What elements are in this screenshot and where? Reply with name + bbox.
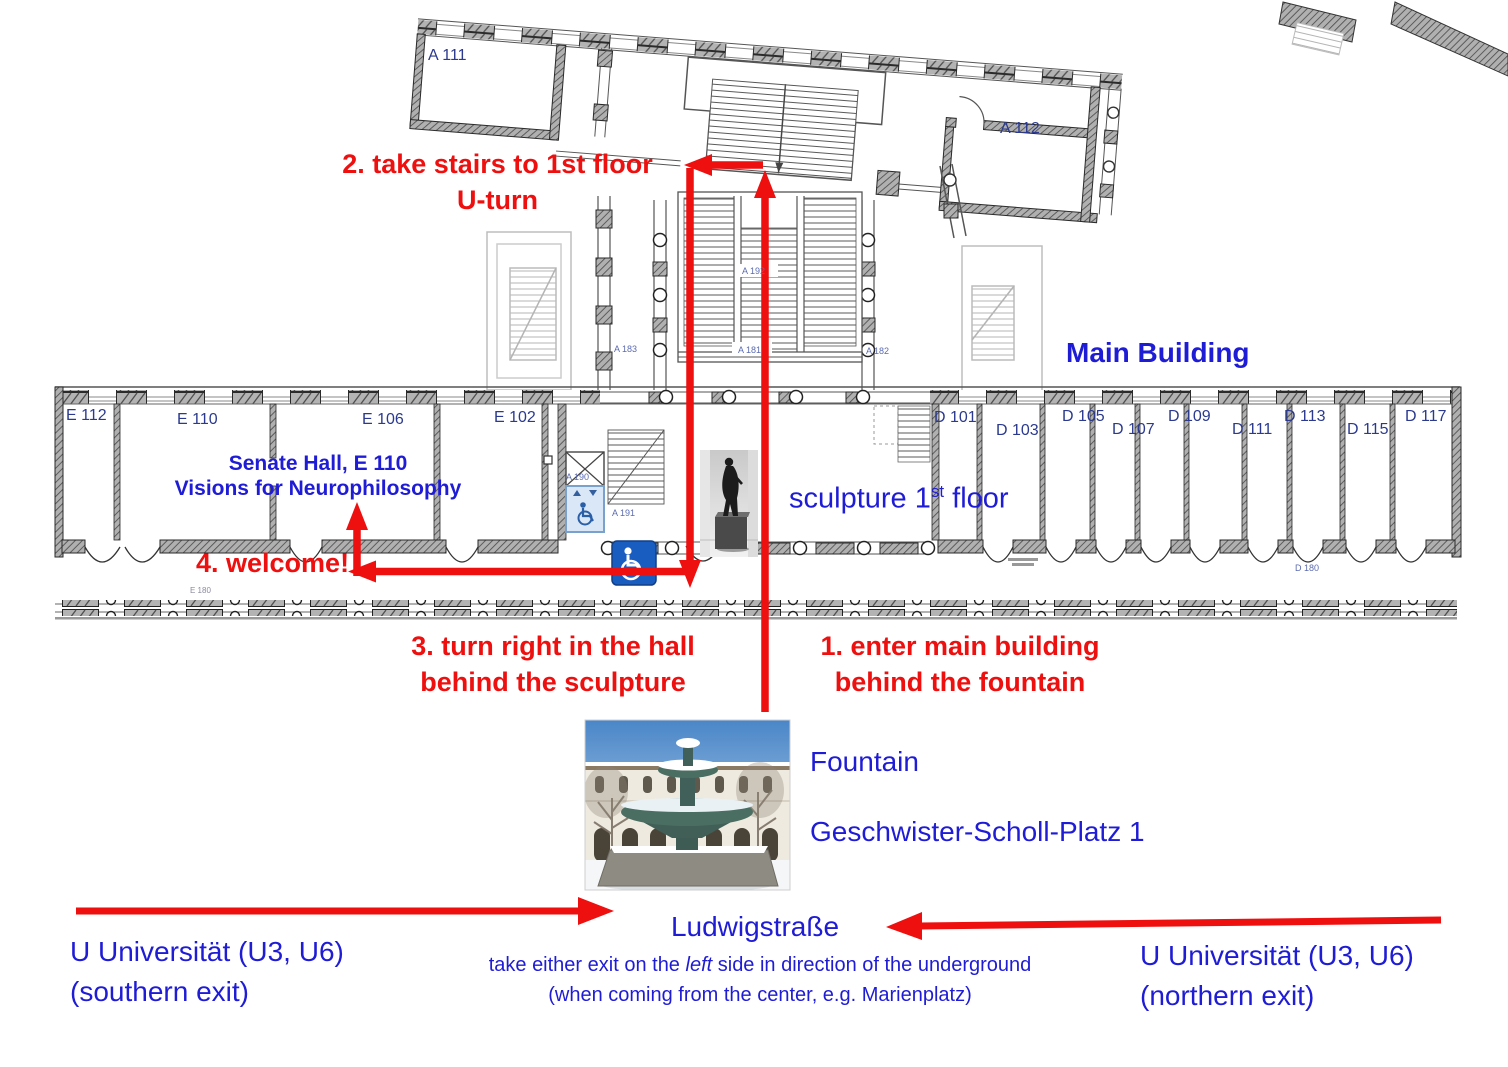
room-label-d180: D 180 — [1295, 563, 1319, 573]
senate-hall-line2: Visions for Neurophilosophy — [133, 476, 503, 501]
instruction-step2-line2: U-turn — [300, 182, 695, 218]
south-exit-label: U Universität (U3, U6) (southern exit) — [70, 932, 344, 1012]
room-label-d107: D 107 — [1112, 421, 1155, 439]
north-exit-line1: U Universität (U3, U6) — [1140, 936, 1414, 976]
instruction-step3-line2: behind the sculpture — [378, 664, 728, 700]
instruction-step2: 2. take stairs to 1st floor U-turn — [300, 146, 695, 218]
sculpture-label-post: floor — [944, 483, 1008, 515]
room-label-e106: E 106 — [362, 411, 404, 429]
street-arrow-west — [920, 920, 1441, 926]
senate-hall-label: Senate Hall, E 110 Visions for Neurophil… — [133, 451, 503, 501]
instruction-step1: 1. enter main building behind the founta… — [785, 628, 1135, 700]
north-exit-line2: (northern exit) — [1140, 976, 1414, 1016]
illegible-tiny-label — [1008, 558, 1038, 566]
instruction-step3-line1: 3. turn right in the hall — [378, 628, 728, 664]
sculpture-photo — [700, 450, 758, 557]
wheelchair-sign-icon — [612, 541, 656, 585]
arrowhead-left-hall — [348, 561, 376, 583]
instruction-step1-line2: behind the fountain — [785, 664, 1135, 700]
elevator-icon — [566, 486, 604, 532]
room-label-a182: A 182 — [866, 346, 889, 356]
room-label-d111: D 111 — [1232, 421, 1272, 439]
exit-note-line1: take either exit on the left side in dir… — [385, 950, 1135, 980]
room-label-d115: D 115 — [1347, 421, 1389, 439]
room-label-e112: E 112 — [66, 407, 107, 425]
main-building-label: Main Building — [1066, 338, 1250, 368]
south-arcade-wall — [55, 600, 1457, 620]
room-label-a181: A 181 — [738, 345, 761, 355]
sculpture-label: sculpture 1st floor — [789, 482, 1009, 516]
street-label: Ludwigstraße — [630, 911, 880, 943]
room-label-e110: E 110 — [177, 411, 218, 429]
exit-note-italic: left — [686, 954, 713, 976]
sculpture-label-pre: sculpture 1 — [789, 483, 931, 515]
arrowhead-left-street — [886, 912, 922, 940]
room-label-e180: E 180 — [190, 586, 211, 595]
sculpture-label-sup: st — [931, 482, 944, 501]
room-label-a183: A 183 — [614, 344, 637, 354]
wayfinding-page: 2. take stairs to 1st floor U-turn 4. we… — [0, 0, 1508, 1067]
service-staircase — [608, 430, 664, 504]
south-exit-line2: (southern exit) — [70, 972, 344, 1012]
room-label-a112: A 112 — [1000, 120, 1040, 138]
room-label-d103: D 103 — [996, 422, 1039, 440]
room-label-d117: D 117 — [1405, 408, 1447, 426]
fountain-label: Fountain — [810, 746, 919, 778]
instruction-step2-line1: 2. take stairs to 1st floor — [300, 146, 695, 182]
exit-note-post: side in direction of the underground — [712, 954, 1031, 976]
room-label-d109: D 109 — [1168, 408, 1211, 426]
grand-staircase — [678, 192, 862, 362]
stairwell-right — [962, 246, 1042, 392]
fountain-photo — [584, 720, 790, 892]
instruction-step3: 3. turn right in the hall behind the scu… — [378, 628, 728, 700]
room-label-d105: D 105 — [1062, 408, 1105, 426]
instruction-step4: 4. welcome! — [196, 545, 349, 581]
senate-hall-line1: Senate Hall, E 110 — [133, 451, 503, 476]
room-label-d101: D 101 — [934, 409, 977, 427]
room-label-a191: A 191 — [612, 508, 635, 518]
exit-note-pre: take either exit on the — [489, 954, 686, 976]
north-exit-label: U Universität (U3, U6) (northern exit) — [1140, 936, 1414, 1016]
room-label-a190: A 190 — [566, 472, 589, 482]
arrowhead-right-street — [578, 897, 614, 925]
arrowhead-up-welcome — [346, 502, 368, 530]
stairwell-left — [487, 232, 571, 390]
address-label: Geschwister-Scholl-Platz 1 — [810, 816, 1145, 848]
floor-plan-svg — [0, 0, 1508, 1067]
room-label-a192: A 192 — [742, 266, 765, 276]
room-label-e102: E 102 — [494, 409, 536, 427]
south-exit-line1: U Universität (U3, U6) — [70, 932, 344, 972]
room-label-d113: D 113 — [1284, 408, 1326, 426]
stair-hall-west-wall — [596, 196, 612, 390]
instruction-step1-line1: 1. enter main building — [785, 628, 1135, 664]
room-label-a111: A 111 — [428, 47, 467, 65]
top-right-wall-fragments — [1279, 2, 1508, 76]
exit-note-line2: (when coming from the center, e.g. Marie… — [385, 980, 1135, 1010]
